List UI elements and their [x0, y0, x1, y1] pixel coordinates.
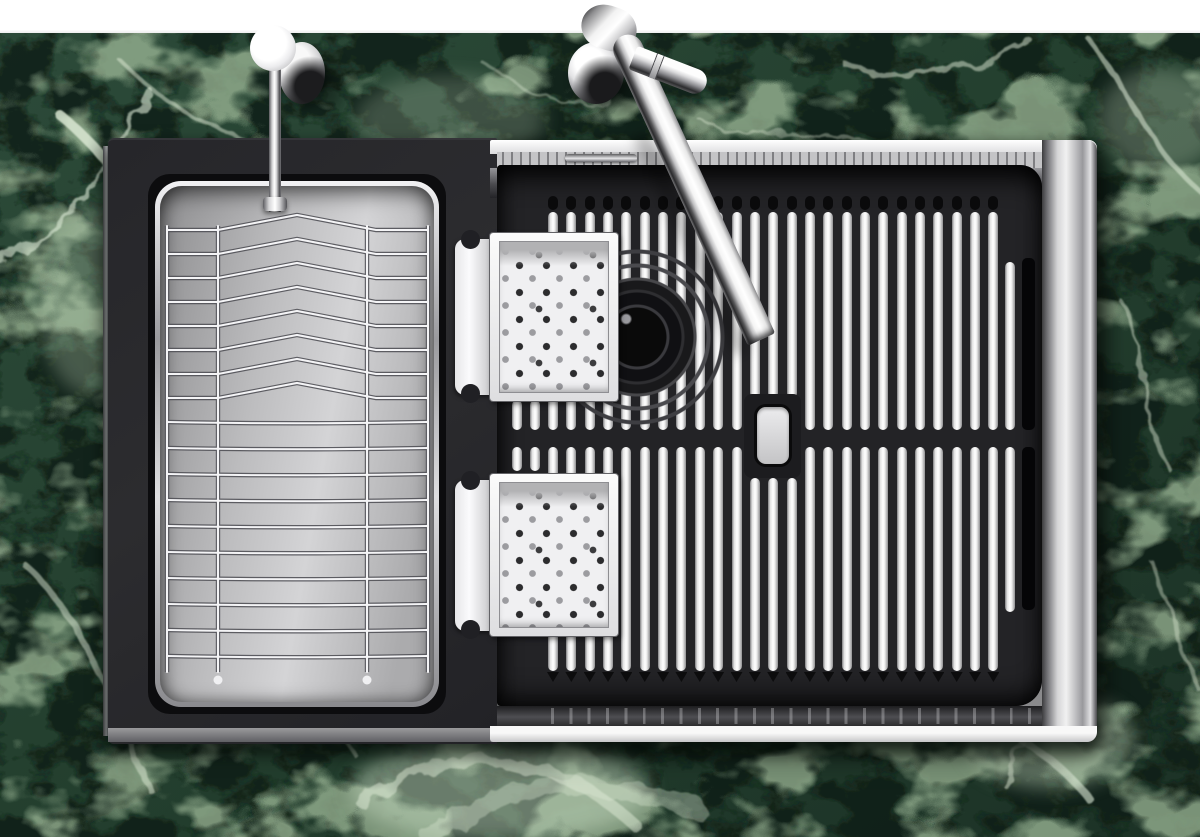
- grate-top-notch: [805, 196, 815, 210]
- grate-slat: [1022, 447, 1035, 610]
- grate-top-notch: [548, 196, 558, 210]
- grate-top-notch: [732, 196, 742, 210]
- grate-bottom-notch: [859, 672, 871, 682]
- ledge-handle-slot: [565, 154, 637, 162]
- grate-top-notch: [640, 196, 650, 210]
- grate-bottom-notch: [951, 672, 963, 682]
- grate-slat: [787, 478, 797, 671]
- grate-slat: [1022, 258, 1035, 430]
- grate-top-notch: [585, 196, 595, 210]
- grate-slat: [842, 212, 852, 430]
- dish-rack-wires: [160, 186, 435, 703]
- colander-handle-notch: [461, 384, 480, 403]
- grate-slat: [915, 447, 925, 671]
- grate-bottom-notch: [712, 672, 724, 682]
- sink-scene: [0, 0, 1200, 837]
- grate-bottom-notch: [804, 672, 816, 682]
- grate-top-notch: [768, 196, 778, 210]
- colander-tray-upper[interactable]: [490, 233, 618, 401]
- grate-slat: [915, 212, 925, 430]
- grate-slat: [988, 212, 998, 430]
- grate-top-notch: [933, 196, 943, 210]
- grate-bottom-notch: [602, 672, 614, 682]
- grate-top-notch: [860, 196, 870, 210]
- grate-center-hole[interactable]: [757, 407, 789, 464]
- grate-slat: [805, 447, 815, 671]
- grate-bottom-notch: [675, 672, 687, 682]
- grate-slat: [897, 212, 907, 430]
- grate-slat: [952, 212, 962, 430]
- sink-bottom-rim: [490, 726, 1097, 742]
- grate-bottom-notch: [547, 672, 559, 682]
- grate-bottom-notch: [822, 672, 834, 682]
- grate-slat: [823, 447, 833, 671]
- grate-slat: [805, 212, 815, 430]
- grate-top-notch: [842, 196, 852, 210]
- grate-bottom-notch: [731, 672, 743, 682]
- sink-bottom-ribbed-ledge: [540, 708, 1042, 724]
- grate-slat: [530, 447, 540, 471]
- grate-slat: [621, 447, 631, 671]
- colander-tray-lower[interactable]: [490, 474, 618, 636]
- grate-slat: [842, 447, 852, 671]
- board-bottom-edge: [108, 728, 497, 742]
- grate-slat: [1005, 262, 1015, 430]
- grate-top-notch: [988, 196, 998, 210]
- grate-bottom-notch: [620, 672, 632, 682]
- grate-slat: [860, 447, 870, 671]
- grate-slat: [823, 212, 833, 430]
- colander-handle-lower[interactable]: [455, 480, 491, 631]
- grate-slat: [787, 212, 797, 398]
- grate-slat: [970, 212, 980, 430]
- grate-top-notch: [952, 196, 962, 210]
- grate-slat: [860, 212, 870, 430]
- grate-slat: [952, 447, 962, 671]
- grate-slat: [640, 447, 650, 671]
- grate-slat: [750, 478, 760, 671]
- grate-top-notch: [897, 196, 907, 210]
- grate-slat: [768, 212, 778, 398]
- grate-slat: [732, 447, 742, 671]
- grate-top-notch: [603, 196, 613, 210]
- grate-slat: [658, 447, 668, 671]
- grate-top-notch: [970, 196, 980, 210]
- grate-top-notch: [915, 196, 925, 210]
- grate-bottom-notch: [786, 672, 798, 682]
- grate-slat: [878, 447, 888, 671]
- colander-plate-upper: [499, 241, 609, 393]
- grate-bottom-notch: [767, 672, 779, 682]
- grate-top-notch: [750, 196, 760, 210]
- side-valve-knob[interactable]: [250, 25, 296, 71]
- grate-bottom-notch: [694, 672, 706, 682]
- grate-bottom-notch: [896, 672, 908, 682]
- grate-slat: [530, 400, 540, 430]
- grate-slat: [512, 400, 522, 430]
- colander-handle-upper[interactable]: [455, 239, 491, 395]
- side-valve-outlet: [263, 197, 287, 211]
- grate-slat: [713, 447, 723, 671]
- grate-slat: [878, 212, 888, 430]
- side-valve-tube: [269, 62, 281, 212]
- grate-bottom-notch: [841, 672, 853, 682]
- grate-slat: [768, 478, 778, 671]
- grate-top-notch: [621, 196, 631, 210]
- grate-slat: [676, 447, 686, 671]
- grate-slat: [988, 447, 998, 671]
- grate-bottom-notch: [987, 672, 999, 682]
- faucet-handle-ring: [649, 54, 664, 79]
- grate-top-notch: [566, 196, 576, 210]
- grate-top-notch: [878, 196, 888, 210]
- grate-bottom-notch: [877, 672, 889, 682]
- colander-handle-notch: [461, 230, 480, 249]
- colander-plate-lower: [499, 482, 609, 628]
- grate-slat: [933, 447, 943, 671]
- grate-bottom-notch: [932, 672, 944, 682]
- colander-handle-notch: [461, 471, 480, 490]
- grate-slat: [897, 447, 907, 671]
- colander-handle-notch: [461, 620, 480, 639]
- grate-slat: [970, 447, 980, 671]
- grate-slat: [933, 212, 943, 430]
- grate-slat: [695, 447, 705, 671]
- grate-bottom-notch: [639, 672, 651, 682]
- grate-top-notch: [823, 196, 833, 210]
- grate-bottom-notch: [584, 672, 596, 682]
- grate-slat: [1005, 447, 1015, 612]
- grate-top-notch: [787, 196, 797, 210]
- grate-bottom-notch: [565, 672, 577, 682]
- grate-bottom-notch: [749, 672, 761, 682]
- sink-right-rim: [1042, 140, 1097, 742]
- grate-bottom-notch: [657, 672, 669, 682]
- grate-bottom-notch: [969, 672, 981, 682]
- grate-slat: [512, 447, 522, 471]
- grate-bottom-notch: [914, 672, 926, 682]
